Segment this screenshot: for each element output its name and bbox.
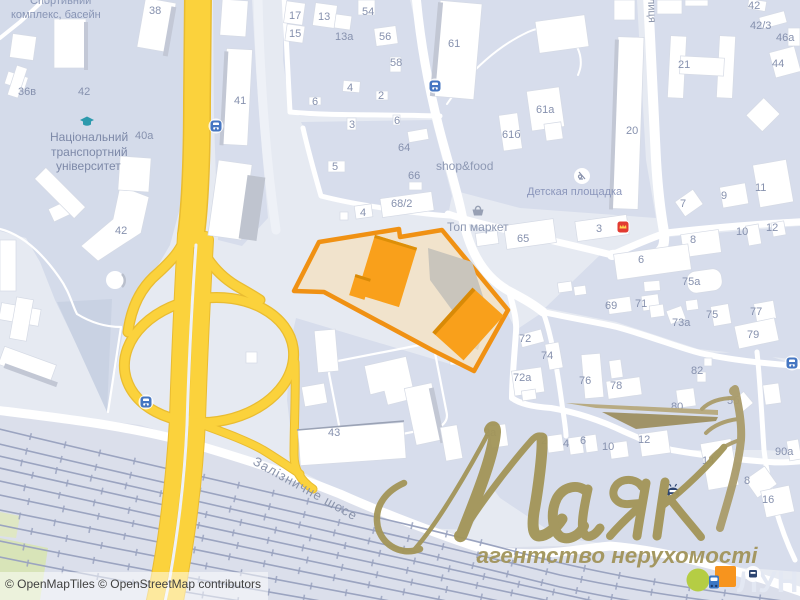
svg-text:72а: 72а [513, 372, 532, 384]
svg-text:75а: 75а [682, 276, 701, 288]
svg-text:4: 4 [347, 82, 353, 94]
svg-text:61а: 61а [536, 104, 555, 116]
svg-text:10: 10 [736, 226, 748, 238]
svg-text:13а: 13а [335, 31, 354, 43]
svg-text:6: 6 [580, 435, 586, 447]
svg-text:6: 6 [638, 254, 644, 266]
svg-text:11: 11 [755, 182, 766, 194]
svg-text:12: 12 [638, 434, 650, 446]
svg-text:shop&food: shop&food [436, 159, 493, 173]
svg-text:2: 2 [378, 90, 384, 102]
svg-text:36в: 36в [18, 86, 36, 98]
svg-text:12: 12 [766, 222, 778, 234]
svg-text:4: 4 [563, 438, 569, 450]
svg-text:65: 65 [517, 233, 529, 245]
svg-text:46а: 46а [776, 32, 795, 44]
svg-text:10: 10 [602, 441, 614, 453]
svg-text:79: 79 [747, 329, 759, 341]
svg-text:42: 42 [78, 86, 90, 98]
svg-text:74: 74 [541, 350, 553, 362]
svg-text:7: 7 [680, 198, 686, 210]
svg-text:54: 54 [362, 6, 374, 18]
svg-text:76: 76 [579, 375, 591, 387]
svg-text:15: 15 [289, 28, 301, 40]
svg-text:42: 42 [115, 225, 127, 237]
svg-text:75: 75 [706, 309, 718, 321]
svg-text:Національний: Національний [50, 130, 128, 144]
svg-text:20: 20 [626, 125, 638, 137]
svg-text:комплекс, басейн: комплекс, басейн [11, 9, 101, 21]
svg-text:6: 6 [312, 96, 318, 108]
svg-text:8: 8 [690, 234, 696, 246]
svg-text:агентство нерухомості: агентство нерухомості [477, 543, 759, 568]
svg-text:13: 13 [318, 11, 330, 23]
svg-text:6: 6 [394, 115, 400, 127]
svg-text:5: 5 [332, 161, 338, 173]
svg-text:Топ маркет: Топ маркет [447, 220, 509, 234]
svg-text:43: 43 [328, 427, 340, 439]
svg-text:транспортний: транспортний [51, 145, 128, 159]
svg-text:21: 21 [678, 59, 690, 71]
svg-text:90а: 90а [775, 446, 794, 458]
svg-text:42: 42 [748, 0, 760, 12]
svg-text:82: 82 [691, 365, 703, 377]
svg-text:66: 66 [408, 170, 420, 182]
svg-text:17: 17 [289, 10, 301, 22]
svg-text:56: 56 [379, 31, 391, 43]
svg-text:64: 64 [398, 142, 410, 154]
svg-text:4: 4 [360, 207, 366, 219]
svg-text:© OpenMapTiles © OpenStreetMap: © OpenMapTiles © OpenStreetMap contribut… [5, 577, 261, 591]
svg-text:40а: 40а [135, 130, 154, 142]
svg-text:42/3: 42/3 [750, 20, 771, 32]
svg-text:61б: 61б [502, 129, 521, 141]
svg-text:73а: 73а [672, 317, 691, 329]
svg-text:Спортивний: Спортивний [30, 0, 91, 7]
svg-text:77: 77 [750, 306, 762, 318]
svg-text:9: 9 [721, 190, 727, 202]
svg-text:41: 41 [234, 95, 246, 107]
svg-text:72: 72 [519, 333, 531, 345]
svg-text:16: 16 [762, 494, 774, 506]
svg-text:68/2: 68/2 [391, 198, 412, 210]
svg-text:3: 3 [349, 119, 355, 131]
svg-text:38: 38 [149, 5, 161, 17]
svg-text:лиця: лиця [645, 0, 658, 23]
svg-text:університет: університет [56, 159, 121, 173]
svg-text:69: 69 [605, 300, 617, 312]
svg-text:44: 44 [772, 58, 784, 70]
svg-text:3: 3 [596, 223, 602, 235]
svg-text:58: 58 [390, 57, 402, 69]
svg-text:78: 78 [610, 380, 622, 392]
svg-text:8: 8 [744, 475, 750, 487]
svg-text:Детская площадка: Детская площадка [527, 186, 623, 198]
svg-text:71: 71 [635, 298, 647, 310]
svg-text:61: 61 [448, 38, 460, 50]
